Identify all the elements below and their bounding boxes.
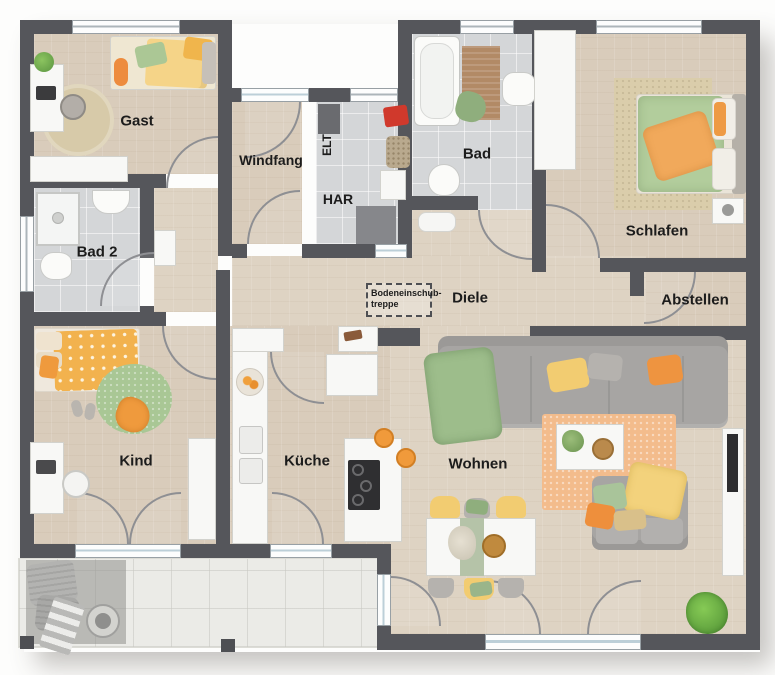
- schlafen-lamp: [722, 204, 734, 216]
- wall: [232, 244, 247, 258]
- attic-hatch-line2: treppe: [371, 299, 427, 310]
- attic-hatch-line1: Bodeneinschub-: [371, 288, 427, 299]
- kueche-stool-2: [396, 448, 416, 468]
- room-label-gast: Gast: [120, 114, 153, 129]
- kueche-burner-1: [352, 464, 364, 476]
- dining-chair-gray-3: [498, 578, 524, 598]
- wohnen-sofa-seam-3: [682, 356, 684, 422]
- kueche-sink-2: [239, 458, 263, 484]
- kind-pillow-1: [36, 332, 62, 350]
- dining-bowl: [482, 534, 506, 558]
- room-label-kind: Kind: [119, 454, 152, 469]
- wall: [20, 544, 75, 558]
- kind-laptop: [36, 460, 56, 474]
- room-label-wohnen: Wohnen: [449, 457, 508, 472]
- wohnen-blanket-green: [423, 346, 504, 446]
- wall: [378, 328, 420, 346]
- wall: [218, 88, 241, 102]
- attic-hatch-box: Bodeneinschub- treppe: [366, 283, 432, 317]
- schlafen-pillow-2: [712, 148, 736, 190]
- diele-bench: [418, 212, 456, 232]
- loveseat-pillow-orange: [584, 502, 616, 530]
- schlafen-pillow-orange: [714, 102, 726, 136]
- wall: [630, 272, 644, 296]
- window-schlafen: [596, 20, 702, 34]
- dining-chair-yellow-1: [430, 496, 460, 518]
- kind-chair: [62, 470, 90, 498]
- wohnen-pillow-gray: [587, 352, 624, 381]
- wohnen-terrace-french-door: [485, 634, 641, 650]
- window-bad: [460, 20, 514, 34]
- har-washer: [380, 170, 406, 200]
- har-toolbox: [383, 104, 410, 127]
- wall: [181, 544, 270, 558]
- room-label-kueche: Küche: [284, 454, 330, 469]
- entrance-door: [241, 88, 309, 102]
- bad-toilet: [428, 164, 460, 196]
- kueche-burner-2: [360, 480, 372, 492]
- wall: [377, 634, 485, 650]
- kueche-fruit-bowl: [236, 368, 264, 396]
- wall: [532, 258, 546, 272]
- wall: [412, 196, 478, 210]
- kind-terrace-door: [75, 544, 181, 558]
- room-label-bad: Bad: [463, 147, 491, 162]
- loveseat-pillow-tan: [613, 509, 647, 532]
- gast-plant-icon: [34, 52, 54, 72]
- kueche-terrace-door: [270, 544, 332, 558]
- wohnen-tray: [592, 438, 614, 460]
- kind-wardrobe: [188, 438, 216, 540]
- window-bad2: [20, 216, 34, 292]
- har-box: [356, 206, 396, 244]
- wohnen-table-plant-icon: [562, 430, 584, 452]
- kueche-tall-cabinet: [326, 354, 378, 396]
- wall: [302, 244, 375, 258]
- bad-sink: [502, 72, 536, 106]
- dining-chair-towel: [465, 499, 488, 515]
- wall: [407, 244, 412, 258]
- kueche-sink-1: [239, 426, 263, 454]
- terrace-post-left: [20, 636, 34, 649]
- terrace-plate: [95, 613, 111, 629]
- wohnen-terrace-side-door: [377, 574, 391, 626]
- gast-dresser: [30, 156, 128, 182]
- wall: [20, 312, 166, 326]
- bad2-toilet: [40, 252, 72, 280]
- elt-cabinet: [318, 104, 340, 134]
- dining-chair-yellow-2: [496, 496, 526, 518]
- gast-laptop: [36, 86, 56, 100]
- terrace-post-right: [221, 639, 235, 652]
- wall: [398, 20, 760, 34]
- room-label-abstellen: Abstellen: [661, 293, 729, 308]
- schlafen-wardrobe: [534, 30, 576, 170]
- room-label-diele: Diele: [452, 291, 488, 306]
- window-har: [350, 88, 398, 102]
- room-label-bad2: Bad 2: [77, 245, 118, 260]
- room-label-elt: ELT: [321, 134, 333, 156]
- bad-bathtub-inner: [420, 43, 454, 119]
- room-label-har: HAR: [323, 192, 353, 206]
- room-label-windfang: Windfang: [239, 153, 303, 167]
- wohnen-plant-icon: [686, 592, 728, 634]
- kind-desk: [30, 442, 64, 514]
- gast-pillow-gray: [202, 42, 216, 84]
- wall: [218, 20, 232, 256]
- har-door: [375, 244, 407, 258]
- diele-cabinet: [154, 230, 176, 266]
- tv: [727, 434, 738, 492]
- window-gast: [72, 20, 180, 34]
- kueche-burner-3: [352, 494, 364, 506]
- wall: [216, 270, 230, 544]
- wall: [641, 634, 760, 650]
- kueche-counter-top: [232, 328, 284, 352]
- wall: [377, 544, 391, 574]
- kind-cushion-orange: [39, 355, 60, 379]
- wall: [309, 88, 350, 102]
- floor-plan: Bodeneinschub- treppe Gast Windfang ELT …: [0, 0, 775, 675]
- kueche-stool-1: [374, 428, 394, 448]
- wall: [600, 258, 760, 272]
- wohnen-pillow-orange: [646, 354, 684, 386]
- gast-pillow-orange: [114, 58, 128, 86]
- wall: [140, 188, 154, 258]
- dining-flowers: [448, 526, 476, 560]
- loveseat-cushion-2: [641, 518, 683, 544]
- gast-chair: [60, 94, 86, 120]
- har-basket: [386, 136, 410, 168]
- dining-chair-gray-2: [428, 578, 454, 598]
- bad2-shower-drain: [52, 212, 64, 224]
- wohnen-sofa-seam-1: [530, 356, 532, 422]
- room-label-schlafen: Schlafen: [626, 224, 689, 239]
